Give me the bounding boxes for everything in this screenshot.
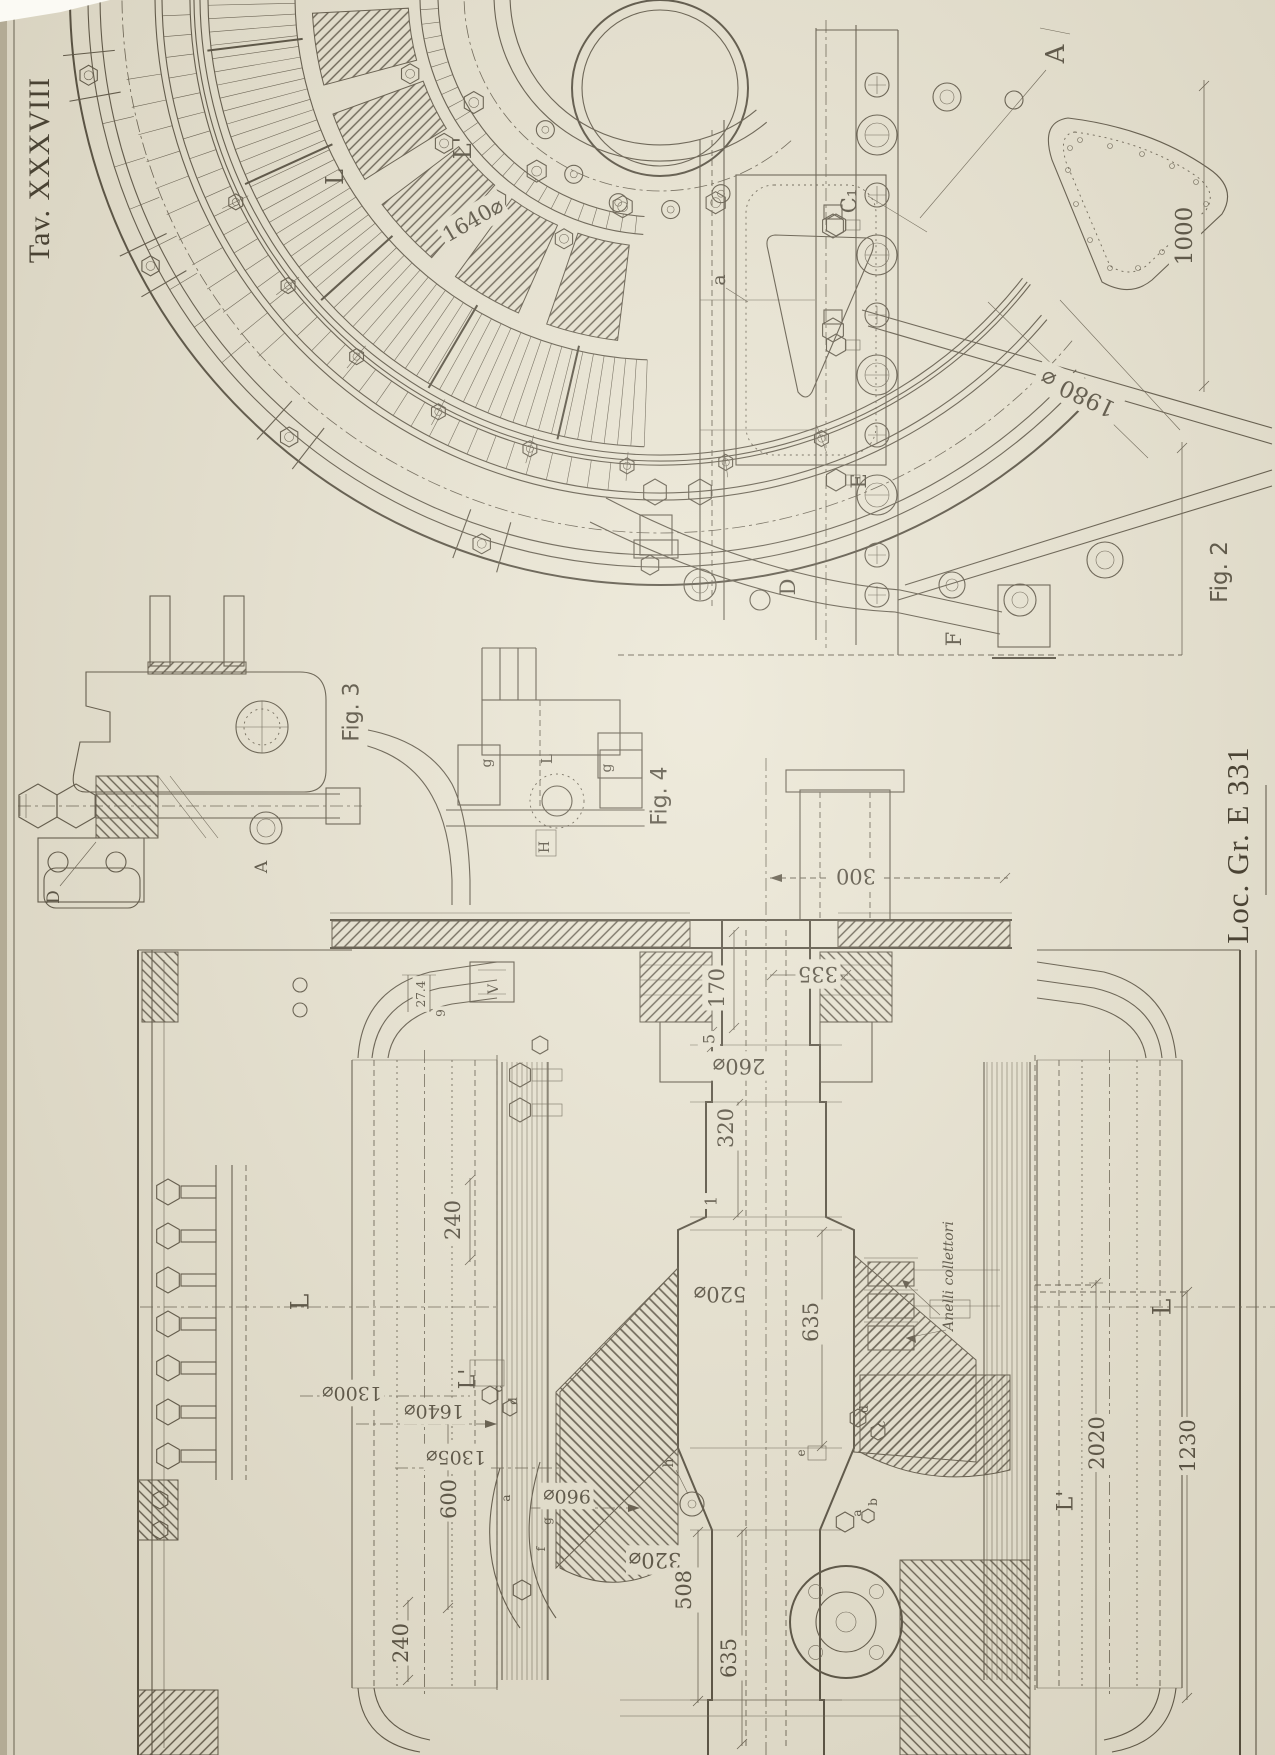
svg-text:E: E (847, 473, 871, 488)
label-part-V: V (486, 983, 502, 995)
svg-text:1230: 1230 (1176, 1419, 1200, 1472)
svg-text:600: 600 (437, 1479, 461, 1519)
svg-text:L': L' (1054, 1491, 1079, 1512)
svg-text:335: 335 (798, 962, 838, 986)
page-edge-left (0, 0, 7, 1755)
label-dim-240-upper: 240 (438, 1197, 467, 1242)
svg-text:F: F (942, 632, 966, 647)
label-part-L1-fig2: L' (449, 137, 477, 160)
label-part-g2-fig4: g (599, 763, 615, 772)
label-part-d-right: d (857, 1405, 871, 1413)
svg-text:c: c (491, 1385, 505, 1392)
svg-text:2020: 2020 (1085, 1416, 1109, 1469)
svg-text:H: H (537, 841, 553, 853)
label-part-L-right: L (1148, 1299, 1177, 1316)
svg-text:d: d (857, 1405, 871, 1413)
drawing-sheet: Fig. 2Fig. 3Fig. 4ALL'1640⌀C₁a10001980 ⌀… (0, 0, 1275, 1755)
label-dim-170: 170 (702, 965, 731, 1010)
label-slip-rings-note: Anelli collettori (941, 1221, 957, 1333)
label-dia-260: 260⌀ (710, 1051, 768, 1080)
label-part-D-fig3: D (44, 890, 64, 904)
svg-text:b: b (866, 1498, 880, 1506)
svg-text:c: c (874, 1420, 888, 1427)
label-part-L-fig2: L (321, 169, 349, 185)
label-part-c-right: c (874, 1420, 888, 1427)
svg-text:Fig. 4: Fig. 4 (648, 766, 673, 825)
page-edge-line (13, 0, 15, 1755)
label-dim-1230: 1230 (1173, 1417, 1202, 1475)
label-fig4-caption: Fig. 4 (645, 752, 676, 840)
svg-text:520⌀: 520⌀ (694, 1282, 747, 1306)
svg-text:d: d (506, 1397, 520, 1405)
label-dim-635-lower: 635 (714, 1635, 743, 1680)
svg-text:508: 508 (672, 1570, 696, 1610)
svg-text:L: L (321, 169, 349, 185)
svg-text:Fig. 3: Fig. 3 (340, 682, 365, 741)
svg-text:e: e (794, 1449, 808, 1456)
label-dia-520: 520⌀ (691, 1279, 749, 1308)
svg-text:9: 9 (434, 1009, 448, 1017)
svg-text:320: 320 (714, 1108, 738, 1148)
svg-text:240: 240 (441, 1200, 465, 1240)
svg-text:260⌀: 260⌀ (713, 1054, 766, 1078)
label-dia-960: 960⌀ (540, 1483, 593, 1510)
svg-text:300: 300 (836, 864, 876, 888)
label-dia-1300: 1300⌀ (320, 1380, 385, 1407)
svg-text:C₁: C₁ (837, 189, 861, 214)
svg-text:L: L (1148, 1299, 1177, 1316)
svg-text:1: 1 (702, 1196, 721, 1206)
svg-text:g: g (540, 1517, 554, 1525)
label-part-D-fig2: D (776, 579, 800, 596)
label-dim-300: 300 (833, 861, 878, 890)
svg-text:1640⌀: 1640⌀ (404, 1400, 464, 1422)
label-dim-27-4: 27.4 (413, 976, 430, 1012)
label-dim-240-lower: 240 (386, 1620, 415, 1665)
svg-text:L: L (538, 754, 556, 764)
svg-text:240: 240 (389, 1623, 413, 1663)
label-part-a-fig2: a (708, 274, 730, 285)
svg-text:L': L' (449, 137, 477, 160)
svg-text:D: D (44, 890, 64, 904)
svg-text:D: D (776, 579, 800, 596)
label-part-E: E (847, 473, 871, 488)
svg-text:960⌀: 960⌀ (543, 1485, 591, 1507)
label-dia-1305: 1305⌀ (424, 1444, 489, 1471)
label-part-d-left: d (506, 1397, 520, 1405)
label-dim-1000: 1000 (1169, 204, 1201, 267)
plate-number: Tav. XXXVIII (23, 77, 57, 263)
label-dim-600: 600 (434, 1476, 463, 1521)
svg-text:1300⌀: 1300⌀ (322, 1382, 382, 1404)
svg-text:635: 635 (799, 1302, 823, 1342)
label-dia-1980: 1980 ⌀ (1030, 359, 1127, 427)
locomotive-title: Loc. Gr. E 331 (1220, 746, 1256, 943)
label-part-H-fig4: H (537, 841, 553, 853)
label-dim-2020: 2020 (1082, 1414, 1111, 1472)
svg-text:A: A (252, 860, 272, 874)
label-part-C1-fig2: C₁ (837, 189, 861, 214)
label-fig3-caption: Fig. 3 (337, 668, 368, 756)
svg-text:a: a (499, 1494, 513, 1501)
label-part-L1-right: L' (1054, 1491, 1079, 1512)
label-dim-1: 1 (700, 1193, 722, 1209)
svg-text:g: g (599, 763, 615, 772)
label-part-A-fig2: A (1041, 43, 1071, 64)
drawing-geometry (18, 0, 1275, 1755)
label-part-h: h (661, 1458, 677, 1467)
label-part-b-right: b (866, 1498, 880, 1506)
svg-text:L: L (286, 1294, 315, 1311)
label-dia-1640-fig1: 1640⌀ (402, 1398, 467, 1425)
svg-text:27.4: 27.4 (414, 980, 428, 1007)
svg-text:1980 ⌀: 1980 ⌀ (1036, 364, 1119, 421)
label-part-g-bottom: g (540, 1517, 554, 1525)
label-part-A-fig3: A (252, 860, 272, 874)
label-part-a-left: a (499, 1494, 513, 1501)
label-dim-335: 335 (795, 959, 840, 988)
svg-text:V: V (486, 983, 502, 995)
label-part-L1-left: L' (456, 1369, 481, 1390)
label-dim-635-upper: 635 (796, 1299, 825, 1344)
svg-text:170: 170 (705, 968, 729, 1008)
label-part-L-fig4: L (538, 754, 556, 764)
svg-text:h: h (661, 1458, 677, 1467)
svg-text:1305⌀: 1305⌀ (426, 1446, 486, 1468)
svg-text:a: a (708, 274, 730, 285)
label-part-g1-fig4: g (479, 758, 495, 767)
label-fig2-caption: Fig. 2 (1204, 526, 1236, 618)
label-dim-508: 508 (669, 1567, 698, 1612)
svg-text:5: 5 (700, 1034, 719, 1044)
label-part-L-left: L (286, 1294, 315, 1311)
label-dim-5: 5 (698, 1031, 720, 1047)
svg-text:g: g (479, 758, 495, 767)
label-part-c-left: c (491, 1385, 505, 1392)
label-dim-320: 320 (711, 1105, 740, 1150)
engineering-drawing-canvas: Fig. 2Fig. 3Fig. 4ALL'1640⌀C₁a10001980 ⌀… (0, 0, 1275, 1755)
label-dim-9: 9 (433, 1006, 450, 1019)
svg-text:1000: 1000 (1172, 207, 1198, 266)
svg-text:Fig. 2: Fig. 2 (1207, 541, 1233, 603)
label-part-a-right: a (850, 1509, 864, 1516)
svg-text:a: a (850, 1509, 864, 1516)
svg-text:Anelli collettori: Anelli collettori (941, 1221, 957, 1333)
label-part-e-right: e (794, 1449, 808, 1456)
label-part-F: F (942, 632, 966, 647)
svg-text:635: 635 (717, 1638, 741, 1678)
svg-text:A: A (1041, 43, 1071, 64)
svg-text:L': L' (456, 1369, 481, 1390)
